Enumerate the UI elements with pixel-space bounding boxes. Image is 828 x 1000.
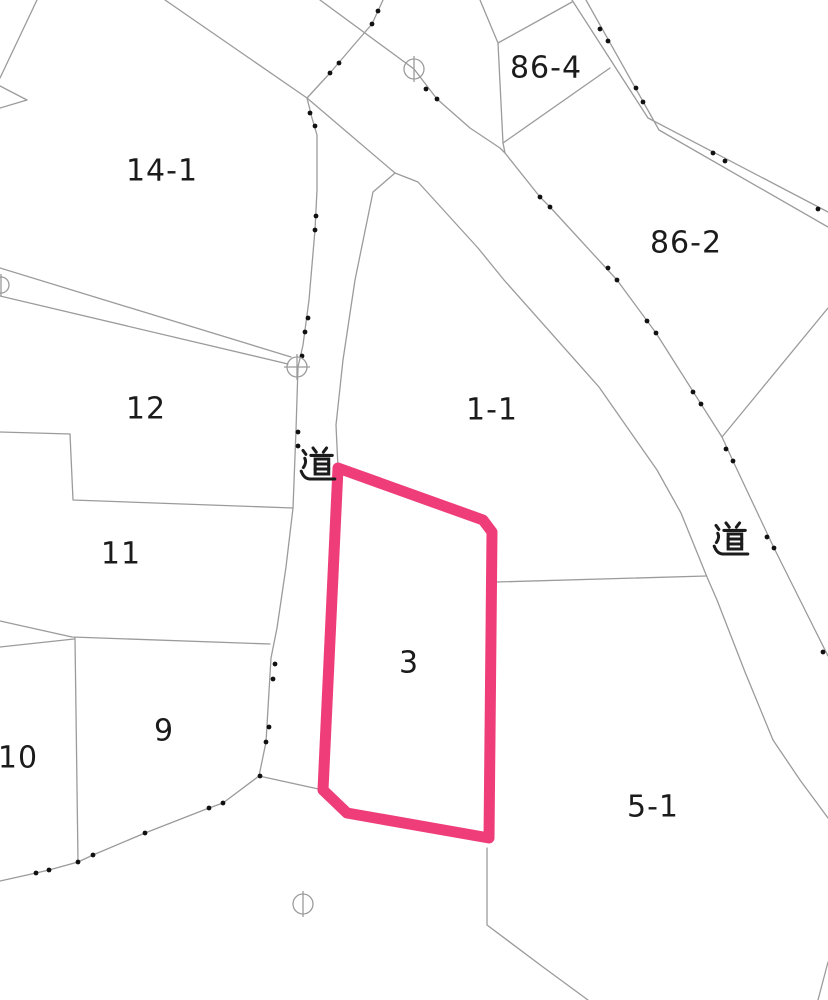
boundary-point-dot [207, 806, 212, 811]
boundary-point-dot [634, 86, 639, 91]
boundary-point-dot [267, 725, 272, 730]
parcel-label-14-1: 14-1 [126, 154, 198, 189]
cadastral-map: 14-186-486-2121-11139105-1 [0, 0, 828, 1000]
parcel-label-3: 3 [399, 646, 419, 681]
boundary-point-dot [606, 39, 611, 44]
boundary-point-dot [654, 331, 659, 336]
cadastral-map-canvas: 14-186-486-2121-11139105-1 [0, 0, 828, 1000]
boundary-point-dot [271, 677, 276, 682]
boundary-point-dot [273, 662, 278, 667]
boundary-point-dot [765, 535, 770, 540]
boundary-point-dot [821, 650, 826, 655]
boundary-point-dot [143, 831, 148, 836]
boundary-point-dot [258, 774, 263, 779]
parcel-label-5-1: 5-1 [627, 790, 679, 825]
boundary-point-dot [691, 390, 696, 395]
boundary-point-dot [296, 430, 301, 435]
boundary-point-dot [376, 9, 381, 14]
boundary-point-dot [313, 228, 318, 233]
boundary-point-dot [308, 111, 313, 116]
parcel-label-12: 12 [126, 392, 166, 427]
boundary-point-dot [772, 546, 777, 551]
boundary-point-dot [615, 278, 620, 283]
boundary-point-dot [548, 205, 553, 210]
boundary-point-dot [724, 447, 729, 452]
boundary-point-dot [435, 97, 440, 102]
boundary-point-dot [699, 402, 704, 407]
boundary-point-dot [47, 868, 52, 873]
boundary-point-dot [76, 860, 81, 865]
boundary-point-dot [221, 801, 226, 806]
boundary-point-dot [711, 151, 716, 156]
boundary-point-dot [606, 266, 611, 271]
parcel-label-11: 11 [101, 537, 141, 572]
boundary-point-dot [303, 330, 308, 335]
boundary-point-dot [306, 316, 311, 321]
boundary-point-dot [34, 871, 39, 876]
boundary-point-dot [723, 159, 728, 164]
boundary-point-dot [424, 87, 429, 92]
boundary-point-dot [731, 459, 736, 464]
boundary-point-dot [313, 124, 318, 129]
parcel-label-86-2: 86-2 [650, 226, 722, 261]
parcel-label-9: 9 [154, 714, 174, 749]
boundary-point-dot [337, 61, 342, 66]
parcel-label-86-4: 86-4 [510, 51, 582, 86]
boundary-point-dot [314, 214, 319, 219]
boundary-point-dot [370, 22, 375, 27]
boundary-point-dot [91, 853, 96, 858]
parcel-label-1-1: 1-1 [466, 393, 518, 428]
boundary-point-dot [641, 100, 646, 105]
parcel-label-10: 10 [0, 741, 38, 776]
boundary-point-dot [264, 740, 269, 745]
boundary-point-dot [645, 319, 650, 324]
boundary-point-dot [296, 444, 301, 449]
boundary-point-dot [816, 207, 821, 212]
boundary-point-dot [538, 195, 543, 200]
boundary-point-dot [328, 71, 333, 76]
boundary-point-dot [598, 27, 603, 32]
